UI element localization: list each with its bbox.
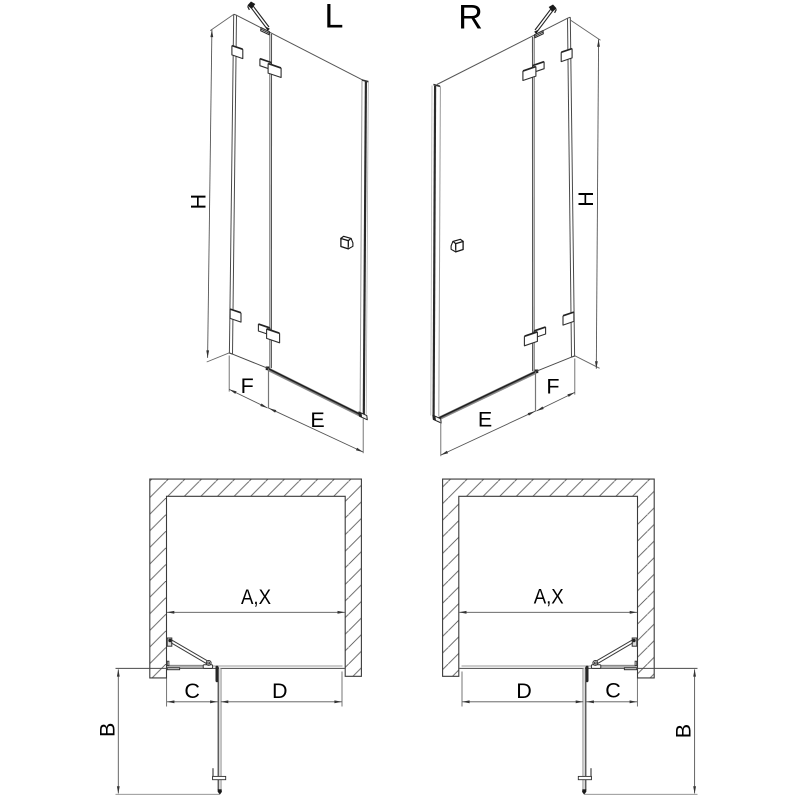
svg-text:F: F — [241, 374, 254, 398]
svg-text:B: B — [96, 723, 120, 737]
svg-text:H: H — [187, 194, 211, 210]
svg-text:A,X: A,X — [241, 585, 271, 609]
svg-text:H: H — [574, 191, 598, 207]
svg-text:R: R — [458, 0, 483, 36]
svg-text:B: B — [671, 724, 695, 738]
svg-text:F: F — [546, 375, 559, 399]
svg-text:C: C — [184, 679, 200, 703]
svg-text:A,X: A,X — [534, 585, 564, 609]
svg-text:D: D — [516, 679, 532, 703]
svg-text:E: E — [310, 408, 324, 432]
svg-text:D: D — [272, 679, 288, 703]
svg-text:C: C — [605, 678, 621, 702]
svg-text:L: L — [325, 0, 344, 35]
svg-text:E: E — [478, 408, 492, 432]
